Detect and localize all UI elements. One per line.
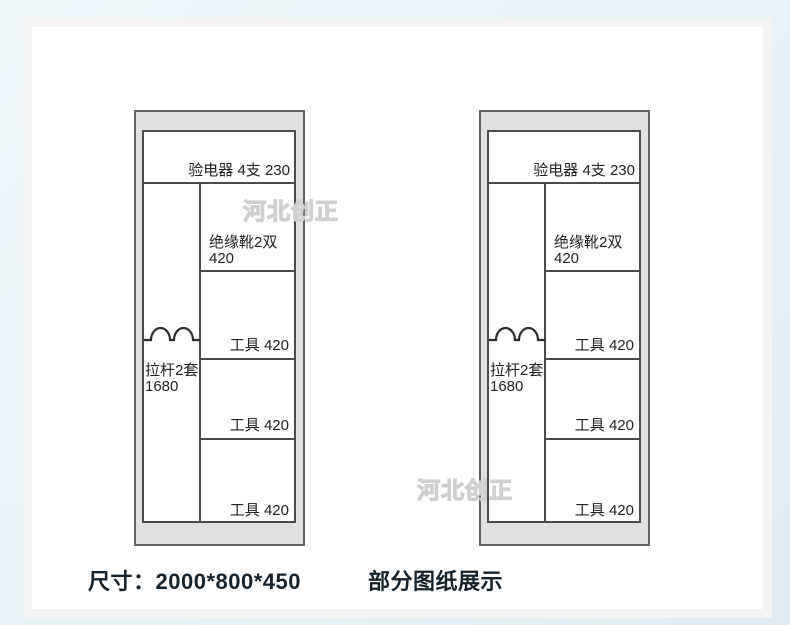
top-shelf: 验电器 4支 230 (144, 132, 294, 184)
boots-label-line1: 绝缘靴2双 (554, 235, 622, 251)
boots-label-line2: 420 (554, 251, 579, 267)
shelf-row-tools-3: 工具 420 (546, 440, 639, 523)
footer-note-text: 部分图纸展示 (368, 564, 503, 596)
tools-label: 工具 420 (201, 334, 294, 358)
top-shelf-label: 验电器 4支 230 (188, 159, 290, 180)
shelf-column: 绝缘靴2双 420 工具 420 工具 420 工具 420 (546, 184, 639, 523)
page-background: { "colors": { "background": "#e7f1f6", "… (0, 0, 790, 625)
shelf-row-tools-1: 工具 420 (201, 272, 294, 360)
shelf-row-tools-1: 工具 420 (546, 272, 639, 360)
pull-rod-label: 拉杆2套 1680 (145, 363, 198, 395)
pull-rod-label-line1: 拉杆2套 (145, 362, 198, 379)
boots-label-line1: 绝缘靴2双 (209, 235, 277, 251)
watermark: 河北创正 (417, 471, 513, 505)
boots-label-line2: 420 (209, 251, 234, 267)
pull-rod-label: 拉杆2套 1680 (490, 363, 543, 395)
pull-rod-label-line2: 1680 (145, 378, 178, 395)
cabinet-main-area: 拉杆2套 1680 绝缘靴2双 420 工具 420 工具 420 工具 420 (144, 184, 294, 523)
tools-label: 工具 420 (546, 334, 639, 358)
tools-label: 工具 420 (546, 499, 639, 523)
footer-dimensions-text: 尺寸：2000*800*450 (88, 564, 301, 596)
shelf-row-tools-3: 工具 420 (201, 440, 294, 523)
tools-label: 工具 420 (546, 414, 639, 438)
pull-rod-squiggle-icon (489, 318, 545, 343)
watermark: 河北创正 (243, 192, 339, 226)
cabinet-inner-panel: 验电器 4支 230 拉杆2套 1680 绝缘靴2双 420 工具 420 (487, 130, 641, 523)
shelf-column: 绝缘靴2双 420 工具 420 工具 420 工具 420 (201, 184, 294, 523)
tools-label: 工具 420 (201, 499, 294, 523)
cabinet-inner-panel: 验电器 4支 230 拉杆2套 1680 绝缘靴2双 420 工具 420 (142, 130, 296, 523)
pull-rod-squiggle-icon (144, 318, 200, 343)
pull-rod-column: 拉杆2套 1680 (144, 184, 201, 523)
pull-rod-label-line1: 拉杆2套 (490, 362, 543, 379)
cabinet-drawing-1: 验电器 4支 230 拉杆2套 1680 绝缘靴2双 420 工具 420 (134, 110, 305, 546)
tools-label: 工具 420 (201, 414, 294, 438)
top-shelf-label: 验电器 4支 230 (533, 159, 635, 180)
shelf-row-tools-2: 工具 420 (546, 360, 639, 440)
pull-rod-label-line2: 1680 (490, 378, 523, 395)
shelf-row-tools-2: 工具 420 (201, 360, 294, 440)
shelf-row-boots: 绝缘靴2双 420 (546, 184, 639, 272)
top-shelf: 验电器 4支 230 (489, 132, 639, 184)
